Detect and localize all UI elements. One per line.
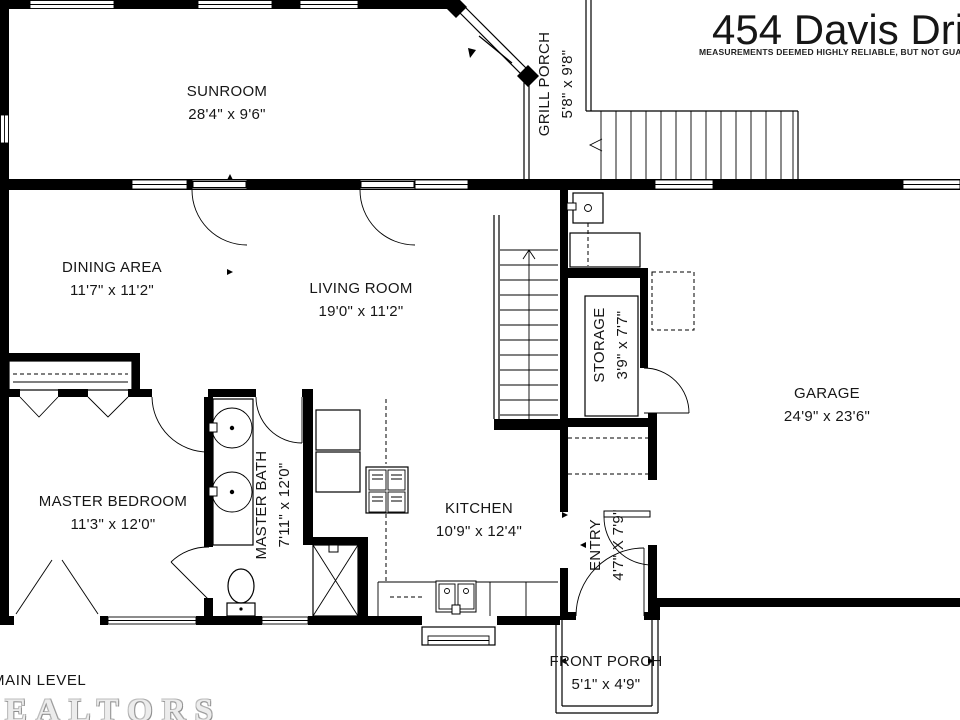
- room-dims: 5'8" x 9'8": [556, 32, 579, 136]
- room-dims: 28'4" x 9'6": [187, 103, 267, 126]
- room-label-master-bedroom: MASTER BEDROOM 11'3" x 12'0": [39, 490, 187, 536]
- stair-direction-arrow: [590, 139, 602, 151]
- room-name: KITCHEN: [436, 497, 522, 520]
- porch-rails: [445, 0, 539, 180]
- room-name: FRONT PORCH: [549, 650, 662, 673]
- plan-disclaimer: MEASUREMENTS DEEMED HIGHLY RELIABLE, BUT…: [699, 47, 960, 57]
- room-dims: 10'9" x 12'4": [436, 520, 522, 543]
- utility-fixture: [567, 193, 640, 267]
- room-dims: 3'9" x 7'7": [611, 307, 634, 382]
- room-label-entry: ENTRY 4'7" X 7'9": [584, 509, 630, 580]
- room-dims: 7'11" x 12'0": [273, 451, 296, 560]
- cabinet: [316, 452, 360, 492]
- room-name: GRILL PORCH: [533, 32, 556, 136]
- refrigerator: [316, 410, 360, 450]
- toilet-icon: [228, 569, 254, 603]
- room-dims: 5'1" x 4'9": [549, 673, 662, 696]
- closet-shelving: [9, 361, 132, 390]
- room-label-sunroom: SUNROOM 28'4" x 9'6": [187, 80, 267, 126]
- room-name: MASTER BATH: [250, 451, 273, 560]
- room-dims: 11'7" x 11'2": [62, 279, 162, 302]
- room-label-dining: DINING AREA 11'7" x 11'2": [62, 256, 162, 302]
- room-name: SUNROOM: [187, 80, 267, 103]
- floorplan-drawing: [0, 0, 960, 720]
- dimension-markers: [227, 48, 840, 664]
- room-label-garage: GARAGE 24'9" x 23'6": [784, 382, 870, 428]
- realtors-logo: REALTORS: [0, 693, 222, 720]
- hall-dashed-opening: [568, 438, 648, 474]
- room-dims: 24'9" x 23'6": [784, 405, 870, 428]
- room-name: LIVING ROOM: [309, 277, 412, 300]
- room-label-storage: STORAGE 3'9" x 7'7": [588, 307, 634, 382]
- room-label-front-porch: FRONT PORCH 5'1" x 4'9": [549, 650, 662, 696]
- floorplan-page: 454 Davis Drive MEASUREMENTS DEEMED HIGH…: [0, 0, 960, 720]
- garage-dashed-storage: [652, 272, 694, 330]
- room-label-master-bath: MASTER BATH 7'11" x 12'0": [250, 451, 296, 560]
- room-name: ENTRY: [584, 509, 607, 580]
- room-dims: 4'7" X 7'9": [607, 509, 630, 580]
- level-label: MAIN LEVEL: [0, 672, 86, 689]
- room-name: DINING AREA: [62, 256, 162, 279]
- room-dims: 19'0" x 11'2": [309, 300, 412, 323]
- room-name: GARAGE: [784, 382, 870, 405]
- interior-stairs: [494, 215, 558, 419]
- room-name: STORAGE: [588, 307, 611, 382]
- room-label-grill-porch: GRILL PORCH 5'8" x 9'8": [533, 32, 579, 136]
- room-label-living: LIVING ROOM 19'0" x 11'2": [309, 277, 412, 323]
- room-label-kitchen: KITCHEN 10'9" x 12'4": [436, 497, 522, 543]
- room-name: MASTER BEDROOM: [39, 490, 187, 513]
- room-dims: 11'3" x 12'0": [39, 513, 187, 536]
